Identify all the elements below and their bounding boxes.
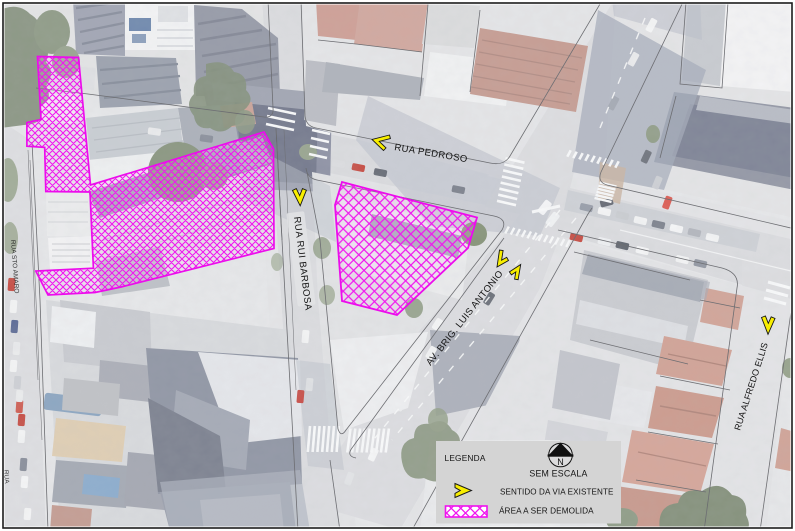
svg-text:N: N [557,457,564,467]
svg-text:SEM ESCALA: SEM ESCALA [529,469,587,479]
svg-text:SENTIDO DA VIA EXISTENTE: SENTIDO DA VIA EXISTENTE [500,488,614,497]
svg-text:ÁREA A SER DEMOLIDA: ÁREA A SER DEMOLIDA [499,506,594,516]
svg-text:LEGENDA: LEGENDA [445,453,486,463]
